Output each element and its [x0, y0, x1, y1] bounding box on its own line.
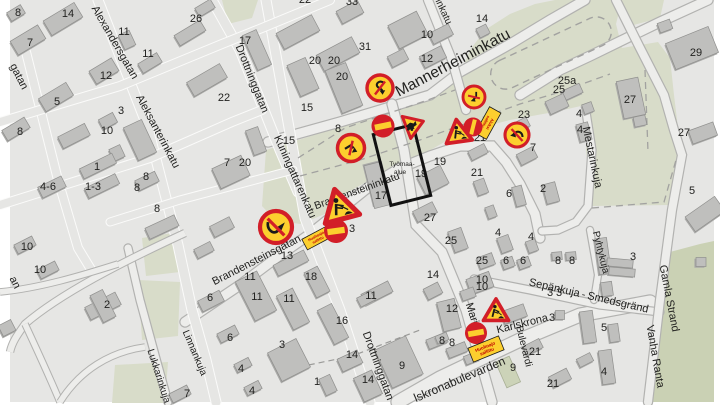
svg-text:5: 5 [54, 96, 60, 108]
svg-text:5: 5 [601, 322, 607, 334]
svg-text:6: 6 [506, 188, 512, 200]
svg-text:1: 1 [314, 376, 320, 388]
svg-text:22: 22 [299, 0, 311, 6]
svg-text:6: 6 [520, 255, 526, 267]
svg-text:4: 4 [577, 124, 583, 136]
svg-text:21: 21 [471, 167, 483, 179]
svg-text:8: 8 [569, 255, 575, 267]
svg-text:4: 4 [576, 108, 582, 120]
svg-text:4: 4 [249, 385, 255, 397]
svg-text:21: 21 [547, 378, 559, 390]
svg-text:17: 17 [239, 35, 251, 47]
svg-text:15: 15 [283, 135, 295, 147]
svg-text:20: 20 [309, 55, 321, 67]
svg-text:19: 19 [434, 156, 446, 168]
svg-text:17: 17 [375, 190, 387, 202]
svg-text:31: 31 [359, 41, 371, 53]
svg-text:21: 21 [529, 346, 541, 358]
svg-text:20: 20 [239, 157, 251, 169]
svg-text:3: 3 [279, 339, 285, 351]
svg-text:10: 10 [101, 125, 113, 137]
svg-text:14: 14 [346, 349, 358, 361]
svg-text:6: 6 [227, 332, 233, 344]
svg-text:2: 2 [540, 183, 546, 195]
svg-text:4: 4 [495, 227, 501, 239]
svg-text:12: 12 [421, 53, 433, 65]
svg-text:11: 11 [118, 26, 129, 38]
svg-text:3: 3 [118, 105, 124, 117]
svg-text:8: 8 [335, 123, 341, 135]
svg-text:3: 3 [547, 287, 553, 299]
svg-text:33: 33 [346, 0, 358, 8]
svg-text:8: 8 [15, 7, 21, 19]
svg-text:3: 3 [549, 312, 555, 324]
svg-text:11: 11 [244, 271, 255, 283]
svg-text:8: 8 [17, 126, 23, 138]
svg-text:13: 13 [281, 250, 293, 262]
svg-text:7: 7 [530, 142, 536, 154]
svg-text:27: 27 [424, 212, 436, 224]
svg-text:27: 27 [678, 127, 690, 139]
svg-text:10: 10 [34, 264, 46, 276]
svg-text:20: 20 [336, 71, 348, 83]
svg-text:4: 4 [528, 231, 534, 243]
svg-text:8: 8 [555, 255, 561, 267]
svg-text:8: 8 [154, 203, 160, 215]
svg-text:18: 18 [305, 271, 317, 283]
svg-text:27: 27 [624, 94, 636, 106]
svg-text:10: 10 [476, 281, 488, 293]
svg-text:7: 7 [27, 37, 33, 49]
svg-text:25: 25 [445, 235, 457, 247]
svg-text:7: 7 [184, 388, 190, 400]
svg-text:4: 4 [238, 363, 244, 375]
svg-text:4-6: 4-6 [40, 181, 56, 193]
svg-text:12: 12 [100, 70, 112, 82]
svg-text:14: 14 [362, 374, 374, 386]
svg-text:11: 11 [365, 290, 376, 302]
svg-text:8: 8 [439, 335, 445, 347]
svg-text:11: 11 [251, 291, 262, 303]
svg-text:2: 2 [104, 299, 110, 311]
svg-text:7: 7 [224, 157, 230, 169]
svg-text:3: 3 [630, 251, 636, 263]
svg-text:9: 9 [510, 362, 516, 374]
svg-text:6: 6 [503, 255, 509, 267]
svg-text:3: 3 [556, 287, 562, 299]
svg-text:alue: alue [394, 169, 407, 176]
svg-text:14: 14 [62, 8, 74, 20]
svg-text:8: 8 [143, 171, 149, 183]
svg-text:11: 11 [283, 293, 294, 305]
svg-text:29: 29 [690, 47, 702, 59]
svg-text:11: 11 [142, 48, 153, 60]
svg-text:4: 4 [601, 366, 607, 378]
svg-text:16: 16 [336, 315, 348, 327]
svg-text:9: 9 [399, 360, 405, 372]
svg-text:25: 25 [476, 255, 488, 267]
svg-text:20: 20 [328, 55, 340, 67]
svg-text:14: 14 [476, 13, 488, 25]
svg-text:22: 22 [218, 92, 230, 104]
svg-text:10: 10 [421, 29, 433, 41]
svg-text:12: 12 [446, 303, 458, 315]
svg-text:Työmaa-: Työmaa- [389, 161, 414, 168]
svg-text:26: 26 [190, 13, 202, 25]
svg-text:10: 10 [21, 241, 33, 253]
svg-text:6: 6 [207, 292, 213, 304]
svg-text:14: 14 [427, 269, 439, 281]
svg-text:3: 3 [349, 223, 355, 235]
svg-text:1-3: 1-3 [85, 181, 101, 193]
svg-text:5: 5 [689, 185, 695, 197]
svg-text:1: 1 [94, 161, 100, 173]
svg-text:15: 15 [301, 102, 313, 114]
svg-text:25: 25 [553, 84, 565, 96]
svg-text:8: 8 [449, 337, 455, 349]
svg-text:8: 8 [134, 182, 140, 194]
svg-text:23: 23 [518, 109, 530, 121]
